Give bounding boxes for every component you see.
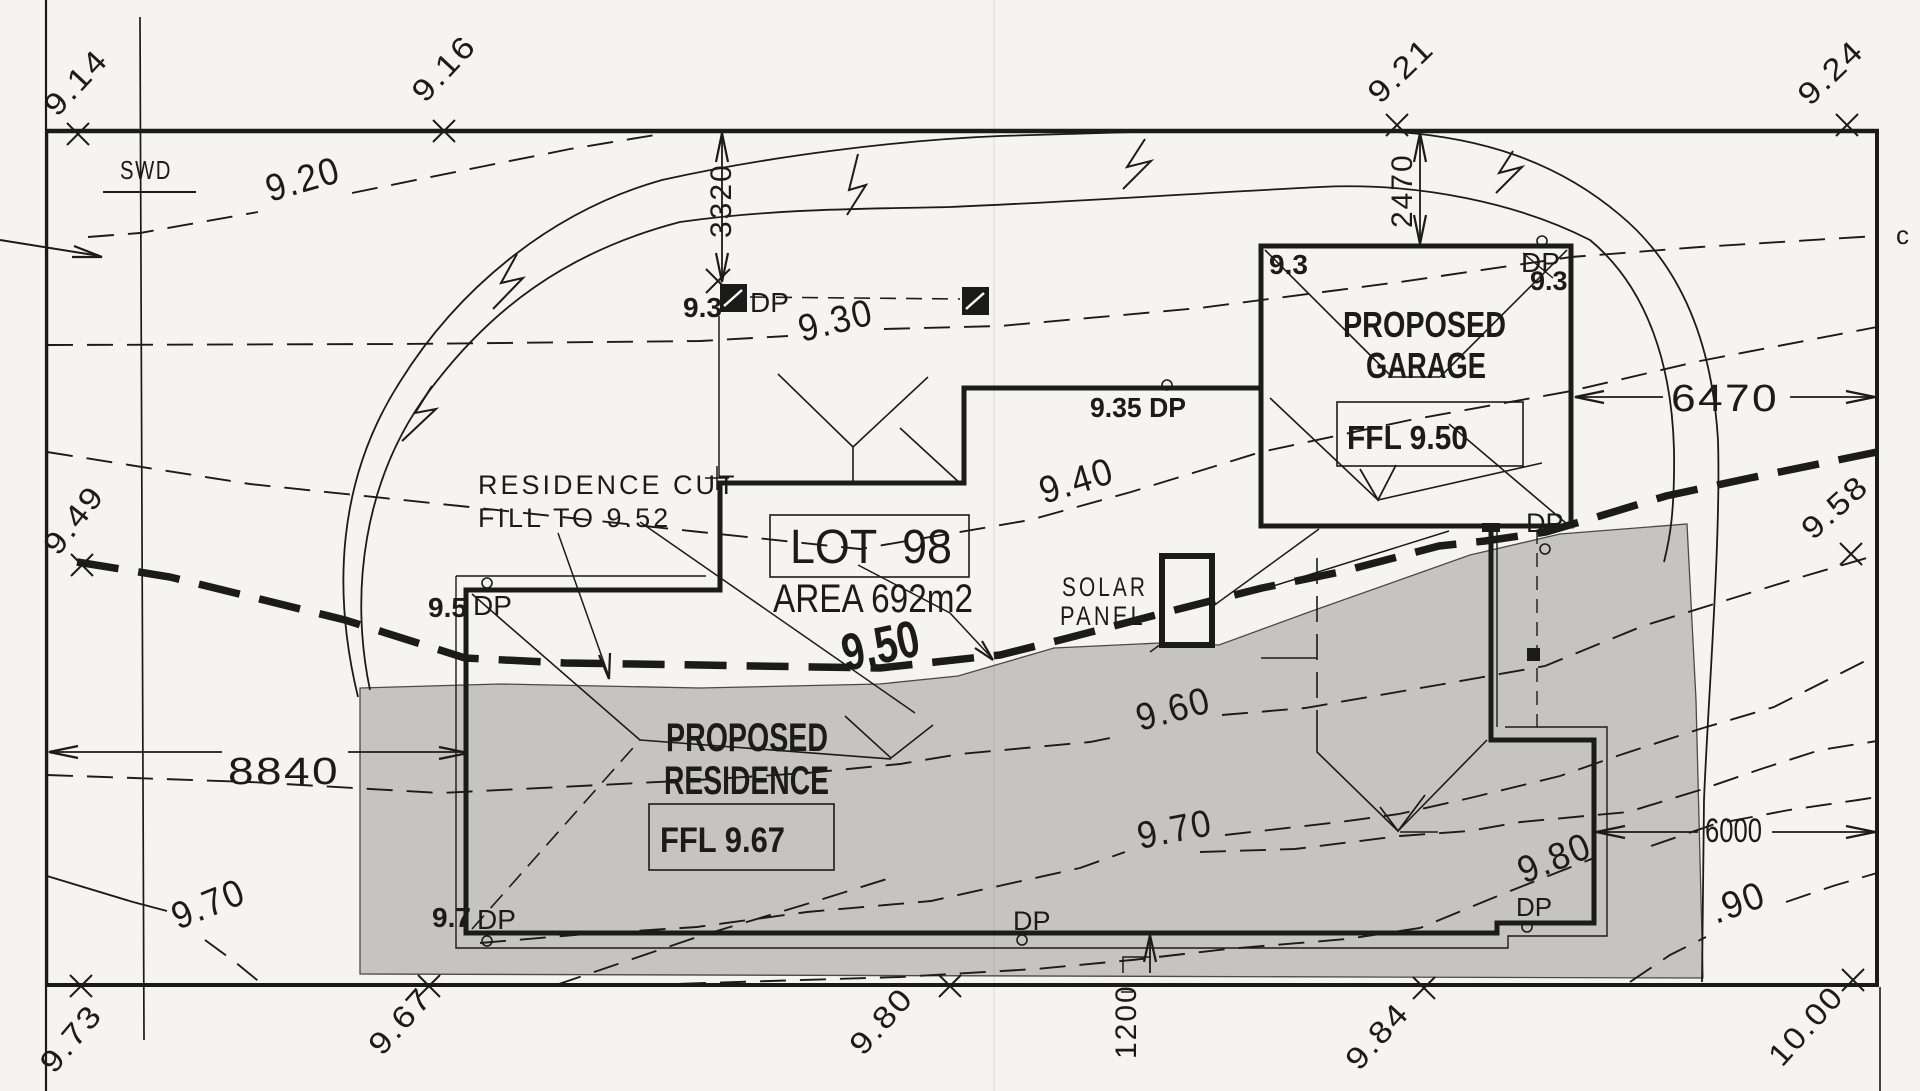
svg-text:9.3: 9.3 (1269, 249, 1308, 280)
svg-text:PROPOSED: PROPOSED (666, 716, 828, 760)
svg-text:DP: DP (1013, 906, 1051, 936)
svg-text:RESIDENCE CUT: RESIDENCE CUT (478, 470, 738, 500)
svg-text:RESIDENCE: RESIDENCE (664, 759, 829, 803)
svg-text:LOT 98: LOT 98 (790, 521, 952, 574)
svg-text:3320: 3320 (705, 163, 738, 238)
svg-text:DP: DP (477, 904, 516, 935)
svg-text:c: c (1896, 220, 1909, 250)
svg-text:SWD: SWD (120, 155, 172, 185)
svg-text:8840: 8840 (228, 751, 340, 793)
svg-text:PANEL: PANEL (1060, 601, 1146, 631)
svg-text:9.3: 9.3 (683, 292, 722, 323)
svg-text:DP: DP (750, 287, 789, 318)
svg-text:FFL 9.50: FFL 9.50 (1347, 419, 1468, 456)
svg-text:DP: DP (1516, 892, 1552, 922)
svg-text:9.3: 9.3 (1530, 266, 1568, 296)
svg-text:SOLAR: SOLAR (1062, 572, 1148, 602)
svg-text:DP: DP (473, 590, 512, 621)
svg-text:PROPOSED: PROPOSED (1343, 304, 1506, 345)
svg-text:FFL 9.67: FFL 9.67 (660, 821, 785, 860)
svg-text:1200: 1200 (1110, 984, 1143, 1059)
svg-text:9.5: 9.5 (428, 592, 467, 623)
svg-text:6470: 6470 (1671, 378, 1779, 420)
svg-text:FILL TO 9.52: FILL TO 9.52 (478, 503, 671, 533)
svg-text:9.35 DP: 9.35 DP (1090, 392, 1186, 423)
svg-text:AREA 692m2: AREA 692m2 (773, 577, 973, 621)
svg-text:2470: 2470 (1386, 153, 1419, 228)
svg-text:GARAGE: GARAGE (1366, 345, 1486, 386)
svg-text:6000: 6000 (1705, 812, 1762, 850)
svg-text:9.7: 9.7 (432, 902, 471, 933)
